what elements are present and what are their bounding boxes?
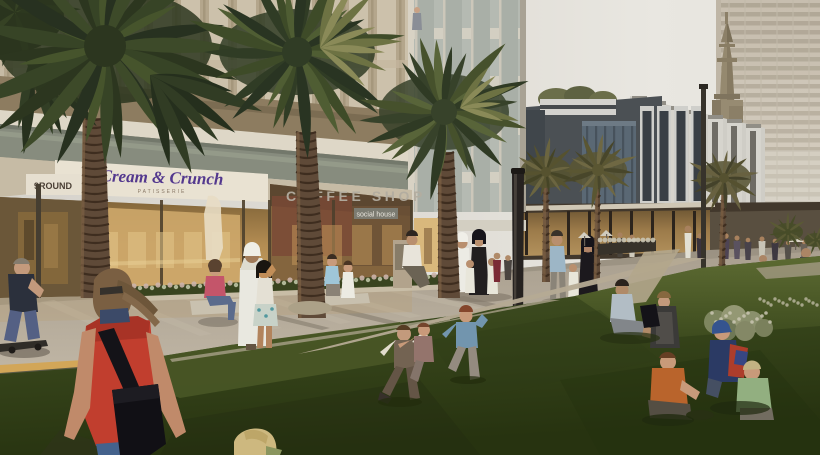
svg-text:Cream & Crunch: Cream & Crunch <box>100 166 223 188</box>
svg-text:PATISSERIE: PATISSERIE <box>138 189 187 195</box>
svg-text:social house: social house <box>357 212 396 219</box>
